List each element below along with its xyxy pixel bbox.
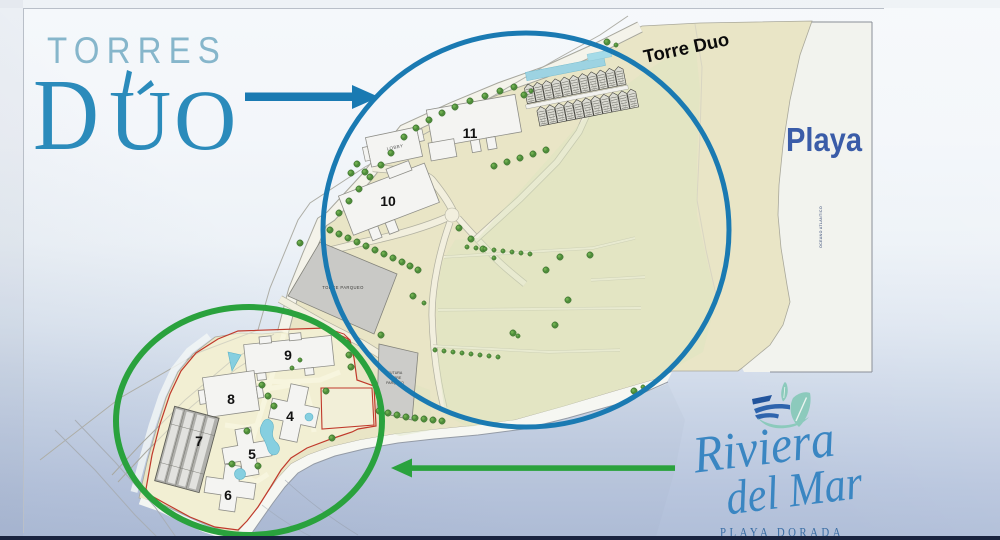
svg-text:OCEANO ATLANTICO: OCEANO ATLANTICO [818,206,823,248]
svg-text:D: D [33,59,99,172]
svg-text:8: 8 [227,391,235,407]
svg-text:9: 9 [284,347,292,363]
svg-text:7: 7 [195,433,203,449]
svg-text:TORRE PARQUEO: TORRE PARQUEO [322,285,364,290]
svg-text:Playa: Playa [786,121,863,158]
svg-text:6: 6 [224,487,232,503]
svg-text:11: 11 [463,125,478,141]
svg-text:4: 4 [286,408,294,424]
svg-text:10: 10 [380,193,396,209]
svg-text:5: 5 [248,446,256,462]
